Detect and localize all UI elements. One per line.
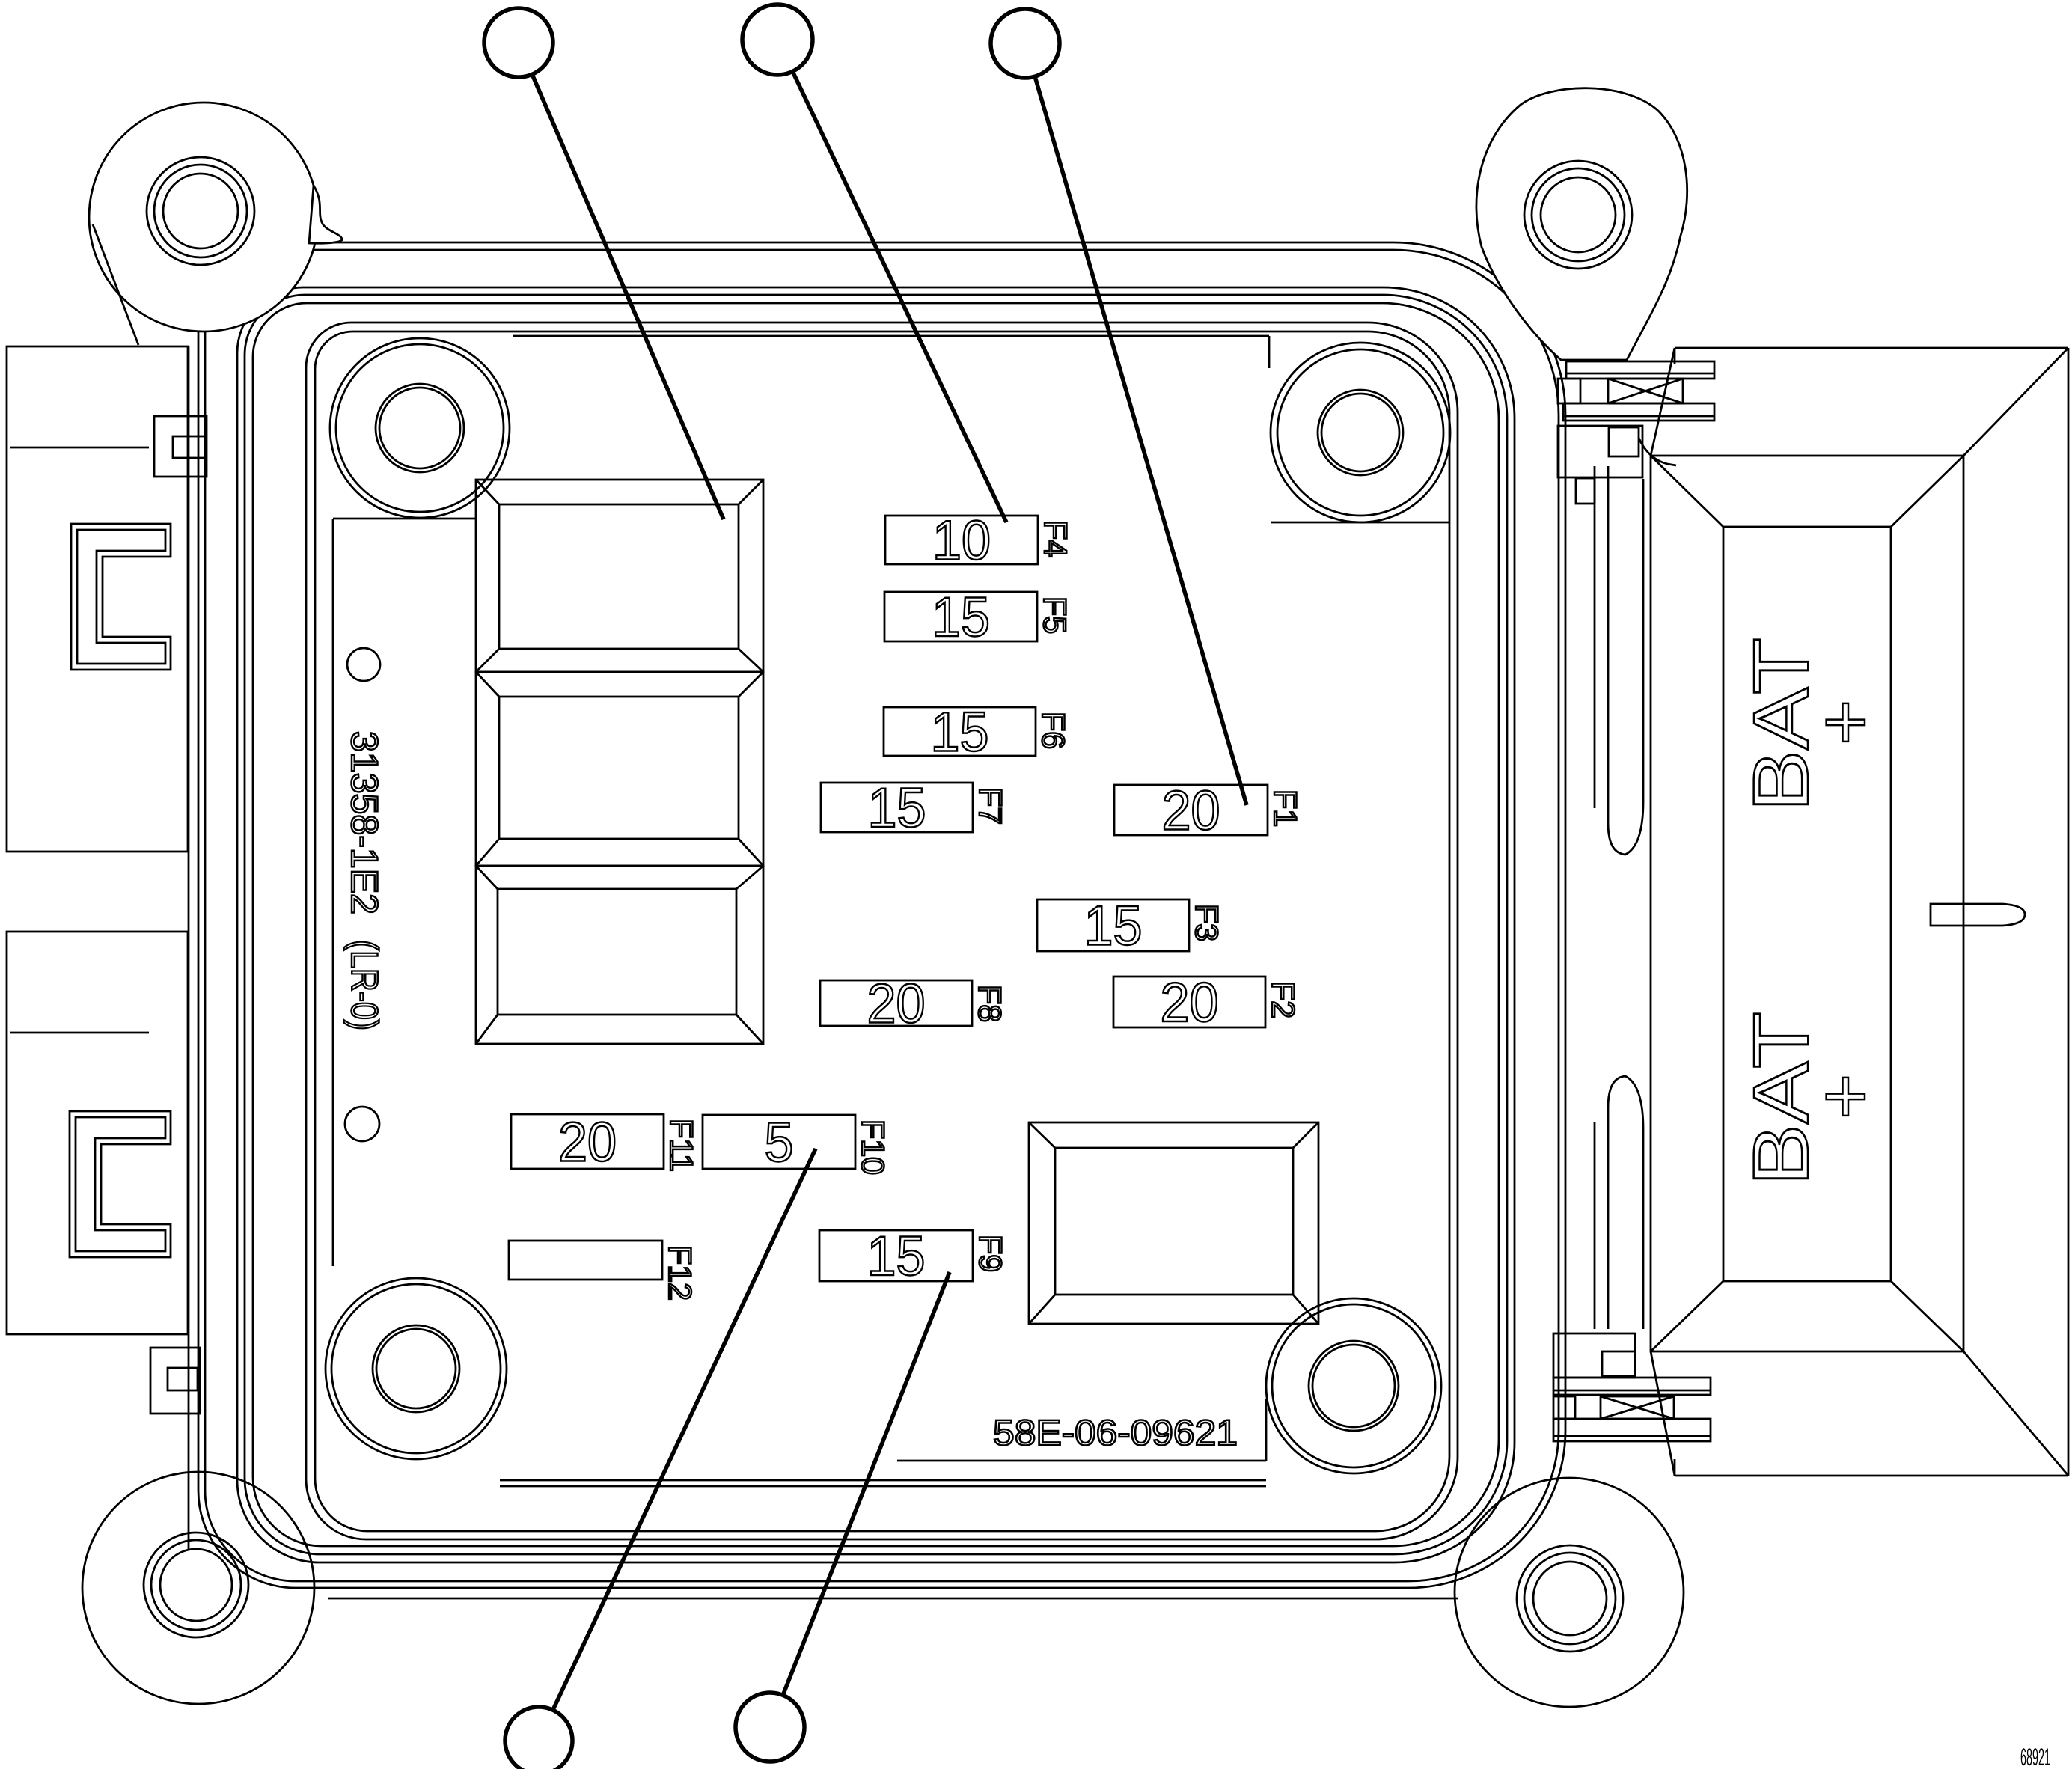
svg-text:F9: F9 <box>972 1235 1008 1272</box>
svg-text:(LR-0): (LR-0) <box>343 940 385 1030</box>
svg-text:68921: 68921 <box>2020 1744 2050 1769</box>
svg-text:15: 15 <box>868 777 926 839</box>
svg-text:20: 20 <box>1161 971 1219 1033</box>
svg-text:5: 5 <box>765 1111 794 1173</box>
svg-text:15: 15 <box>867 1225 926 1287</box>
svg-text:F7: F7 <box>972 787 1008 825</box>
svg-text:15: 15 <box>932 586 990 648</box>
svg-text:20: 20 <box>558 1111 617 1173</box>
svg-text:F11: F11 <box>663 1119 699 1172</box>
svg-text:31358-1E2: 31358-1E2 <box>343 731 385 914</box>
svg-text:+: + <box>1801 700 1889 745</box>
svg-text:15: 15 <box>1084 895 1143 957</box>
svg-text:10: 10 <box>932 510 991 572</box>
svg-text:F10: F10 <box>855 1119 890 1175</box>
svg-text:58E-06-09621: 58E-06-09621 <box>993 1414 1238 1453</box>
svg-text:F6: F6 <box>1035 712 1071 749</box>
svg-text:F4: F4 <box>1037 520 1073 557</box>
svg-text:15: 15 <box>931 701 989 763</box>
svg-text:20: 20 <box>1162 780 1220 842</box>
svg-text:F2: F2 <box>1265 981 1301 1018</box>
svg-text:20: 20 <box>867 973 926 1035</box>
svg-text:F5: F5 <box>1036 596 1072 634</box>
svg-text:F3: F3 <box>1188 904 1224 941</box>
svg-text:+: + <box>1801 1074 1889 1119</box>
svg-text:F1: F1 <box>1267 789 1303 827</box>
svg-text:F12: F12 <box>661 1245 697 1301</box>
svg-text:F8: F8 <box>971 985 1007 1022</box>
